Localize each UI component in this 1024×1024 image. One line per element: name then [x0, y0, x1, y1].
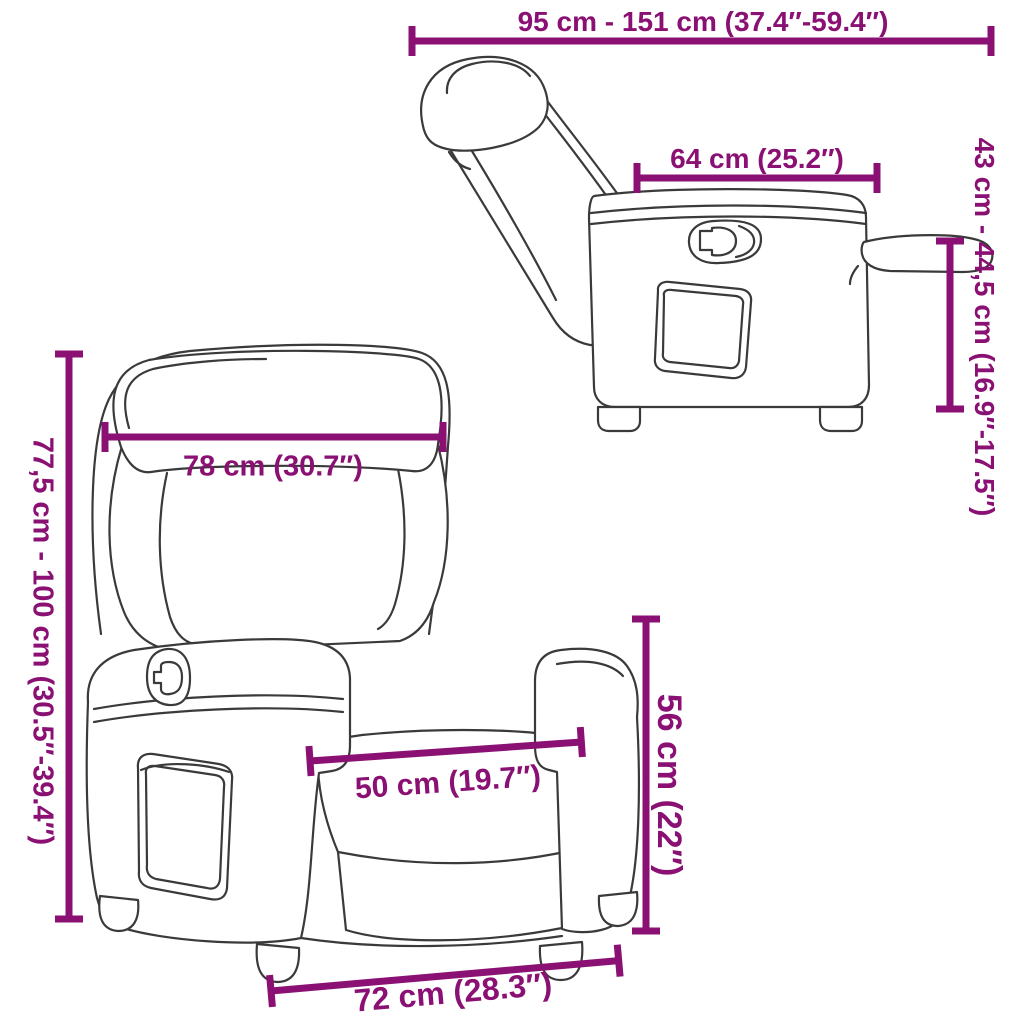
side-foot-left — [598, 407, 640, 431]
armrest-height-label: 56 cm (22″) — [652, 694, 686, 877]
dimension-diagram: 95 cm - 151 cm (37.4″-59.4″) 64 cm (25.2… — [0, 0, 1024, 1024]
recliner-side-view — [421, 57, 992, 431]
seat-unit-depth-label: 64 cm (25.2″) — [670, 145, 844, 173]
backrest-width-label: 78 cm (30.7″) — [183, 453, 363, 482]
overall-length-label: 95 cm - 151 cm (37.4″-59.4″) — [518, 8, 889, 36]
footrest-height-label: 43 cm - 44,5 cm (16.9″-17.5″) — [970, 138, 998, 517]
front-foot-2 — [257, 944, 299, 982]
front-foot-1 — [99, 896, 138, 931]
backrest-height-label: 77,5 cm - 100 cm (30.5″-39.4″) — [28, 437, 57, 845]
front-foot-4 — [599, 892, 637, 926]
side-foot-right — [820, 407, 862, 431]
dim-backrest-height-line — [55, 354, 83, 919]
diagram-artwork — [0, 0, 1024, 1024]
